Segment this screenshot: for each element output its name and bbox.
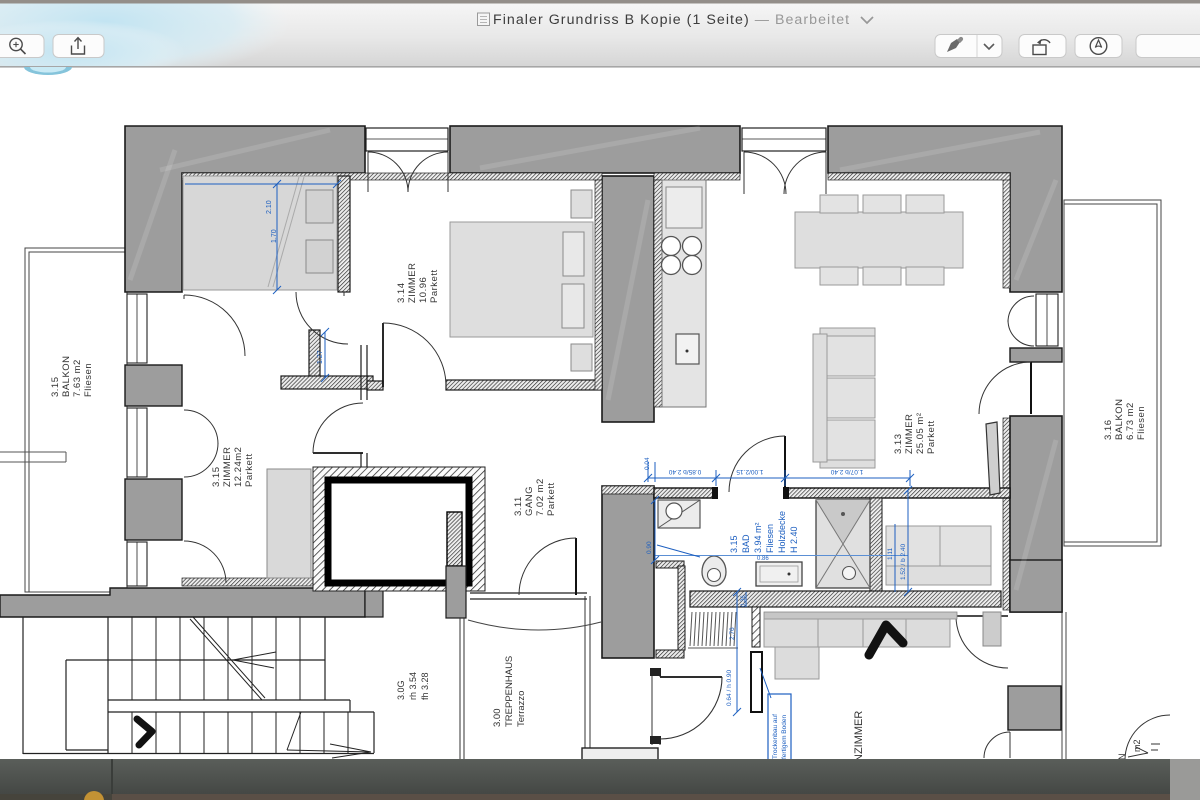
svg-text:2.76: 2.76 (729, 627, 736, 640)
svg-text:3.15: 3.15 (211, 467, 222, 488)
svg-text:3.94 m²: 3.94 m² (753, 522, 763, 553)
svg-text:NZIMMER: NZIMMER (853, 711, 865, 762)
svg-text:Fliesen: Fliesen (83, 363, 94, 397)
svg-text:GANG: GANG (524, 486, 535, 516)
svg-text:ZIMMER: ZIMMER (407, 263, 418, 303)
svg-text:2.10: 2.10 (266, 200, 273, 214)
svg-text:3.15: 3.15 (50, 377, 61, 398)
svg-text:0.04: 0.04 (644, 457, 651, 470)
svg-text:0.86: 0.86 (757, 556, 769, 562)
svg-text:7.63 m2: 7.63 m2 (72, 359, 83, 397)
svg-text:Finaler Grundriss B Kopie (1 S: Finaler Grundriss B Kopie (1 Seite) — Be… (493, 12, 850, 28)
svg-text:Parkett: Parkett (926, 420, 937, 454)
svg-text:Parkett: Parkett (546, 482, 557, 516)
svg-text:Fliesen: Fliesen (1136, 406, 1147, 440)
svg-text:Trockenbau auf: Trockenbau auf (772, 714, 779, 759)
svg-text:10.96: 10.96 (418, 277, 429, 303)
svg-text:BALKON: BALKON (61, 355, 72, 397)
svg-text:3.00: 3.00 (492, 709, 503, 728)
svg-text:fh 3.28: fh 3.28 (420, 672, 430, 700)
svg-text:0.90: 0.90 (646, 541, 653, 554)
svg-text:1.27: 1.27 (317, 350, 324, 364)
svg-text:3.15: 3.15 (729, 535, 739, 553)
svg-text:3.11: 3.11 (513, 496, 524, 516)
svg-text:H 2.40: H 2.40 (789, 526, 799, 553)
svg-text:1.70: 1.70 (271, 229, 278, 243)
svg-text:Parkett: Parkett (429, 269, 440, 303)
svg-text:3.16: 3.16 (1103, 420, 1114, 441)
svg-text:0.85/b 2.40: 0.85/b 2.40 (668, 468, 701, 475)
svg-text:TREPPENHAUS: TREPPENHAUS (504, 656, 515, 727)
svg-text:Terrazzo: Terrazzo (516, 691, 527, 727)
svg-text:Holzdecke: Holzdecke (777, 511, 787, 553)
svg-text:Parkett: Parkett (244, 453, 255, 487)
svg-text:1.07/b 2.40: 1.07/b 2.40 (830, 468, 863, 475)
svg-text:m2: m2 (1132, 739, 1142, 752)
svg-text:1.00/2.15: 1.00/2.15 (736, 468, 763, 475)
svg-text:3.13: 3.13 (893, 434, 904, 455)
svg-text:6.73 m2: 6.73 m2 (1125, 402, 1136, 440)
svg-text:ZIMMER: ZIMMER (222, 447, 233, 487)
svg-text:0.64 / h 0.90: 0.64 / h 0.90 (726, 669, 733, 706)
svg-text:ZIMMER: ZIMMER (904, 414, 915, 454)
svg-text:1.11: 1.11 (887, 547, 894, 560)
svg-text:3.14: 3.14 (396, 283, 407, 304)
svg-text:3.0G: 3.0G (396, 680, 406, 700)
svg-text:12.24m2: 12.24m2 (233, 447, 244, 487)
svg-text:rh 3.54: rh 3.54 (408, 672, 418, 700)
svg-text:7.02 m2: 7.02 m2 (535, 478, 546, 516)
svg-text:BALKON: BALKON (1114, 398, 1125, 440)
svg-text:0.36: 0.36 (741, 595, 747, 607)
svg-text:1.52 / b 2.40: 1.52 / b 2.40 (900, 543, 907, 580)
svg-text:fertigem Boden: fertigem Boden (781, 715, 788, 759)
svg-text:BAD: BAD (741, 534, 751, 553)
svg-text:25.05 m²: 25.05 m² (915, 413, 926, 455)
svg-text:Fliesen: Fliesen (765, 524, 775, 553)
